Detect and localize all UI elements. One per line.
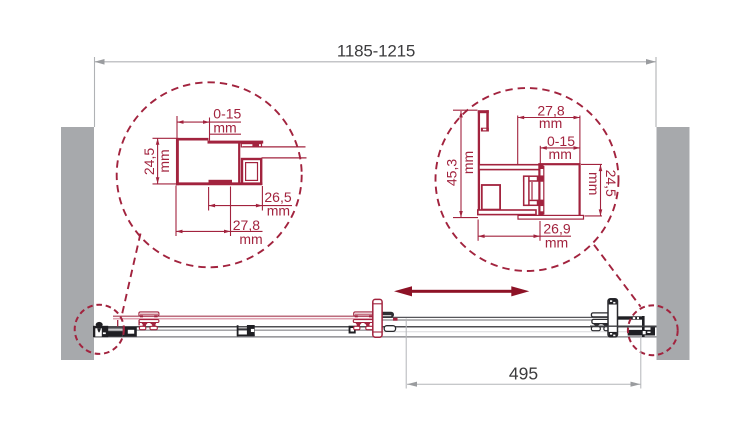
svg-text:495: 495 [509,364,538,384]
svg-text:mm: mm [267,202,290,218]
svg-text:mm: mm [239,231,262,247]
svg-text:24,5: 24,5 [603,170,619,197]
svg-text:24,5: 24,5 [141,148,157,175]
svg-text:mm: mm [545,235,568,251]
svg-text:1185-1215: 1185-1215 [337,42,415,61]
svg-text:mm: mm [586,172,602,195]
svg-text:mm: mm [460,151,476,174]
svg-text:mm: mm [549,146,572,162]
svg-text:mm: mm [156,149,172,172]
svg-text:mm: mm [539,115,562,131]
svg-text:45,3: 45,3 [443,159,459,186]
svg-text:mm: mm [213,120,236,136]
